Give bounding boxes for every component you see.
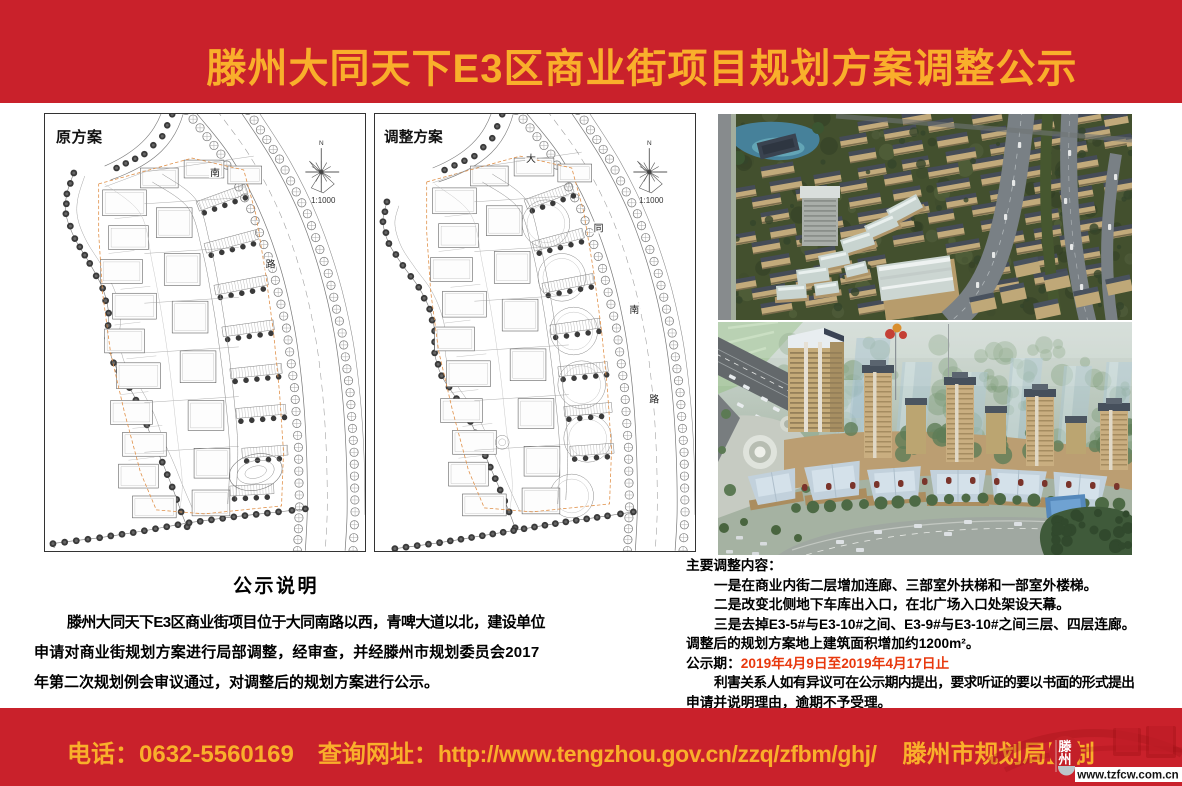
svg-text:www.tzfcw.com.cn: www.tzfcw.com.cn [1076,770,1178,782]
svg-text:南: 南 [210,166,220,179]
svg-text:N: N [647,140,652,147]
svg-text:1:1000: 1:1000 [311,196,336,205]
svg-text:州: 州 [1057,752,1071,767]
svg-text:大: 大 [526,152,536,165]
svg-text:同: 同 [594,223,604,235]
svg-text:南: 南 [629,303,639,316]
svg-text:N: N [319,140,324,147]
svg-text:路: 路 [266,257,276,270]
svg-text:路: 路 [649,393,659,406]
svg-text:1:1000: 1:1000 [639,196,664,205]
